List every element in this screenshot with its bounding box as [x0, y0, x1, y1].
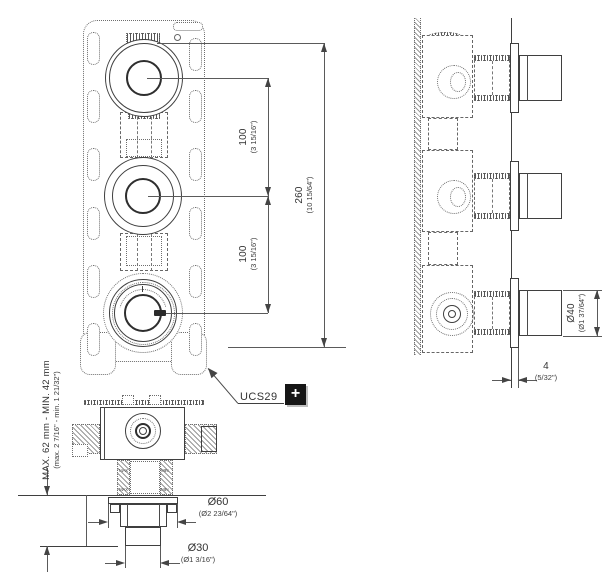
- dim-line-spacing-top: [268, 78, 269, 196]
- body-top-ear-inner: [450, 72, 466, 92]
- dim-arrow: [177, 519, 186, 525]
- mounting-slot: [87, 265, 100, 298]
- escutcheon-top: [510, 43, 519, 113]
- knob-base-line: [527, 173, 528, 219]
- engraving-min: MIN: [161, 488, 168, 493]
- mounting-slot: [189, 265, 202, 298]
- dim-label-trim-offset: 4 (5/32"): [516, 361, 576, 382]
- knob-base-line: [527, 290, 528, 336]
- dim-line-overall-height: [324, 43, 325, 347]
- stem-knurl: [474, 329, 510, 335]
- mounting-slot: [87, 32, 100, 65]
- safety-stop-button: [154, 310, 166, 316]
- engraving-min: MIN: [161, 469, 168, 474]
- dim-label-spacing-top: 100 (3 15/16"): [238, 97, 262, 177]
- screw-boss: [122, 395, 134, 405]
- knob-base-line: [527, 55, 528, 101]
- dial-index-tick: [142, 286, 143, 292]
- dim-line-spacing-bottom: [268, 196, 269, 313]
- leader-line: [157, 43, 324, 44]
- engraving-max: MAX: [119, 488, 128, 493]
- callout-underline: [238, 403, 284, 404]
- dim-arrow: [265, 304, 271, 313]
- dim-arrow: [594, 290, 600, 299]
- mounting-slot: [189, 148, 202, 181]
- projection-line: [86, 495, 87, 546]
- escutcheon-middle: [510, 161, 519, 231]
- extension-line: [108, 504, 109, 528]
- dim-arrow: [265, 196, 271, 205]
- pipe-cap-right: [201, 426, 217, 452]
- plate-top-slot: [173, 22, 203, 31]
- stem-line: [492, 61, 493, 95]
- leader-line: [147, 78, 268, 79]
- stem-knurl: [474, 95, 510, 101]
- collar-line: [127, 504, 128, 527]
- dim-arrow: [116, 560, 125, 566]
- dim-arrow: [321, 338, 327, 347]
- reference-line: [40, 546, 118, 547]
- dim-label-depth: MAX. 62 mm - MIN. 42 mm (max. 2 7/16" - …: [42, 345, 68, 495]
- bracket-edge-strip: [84, 400, 204, 405]
- dim-label-handle-diameter: Ø40 (Ø1 37/64"): [566, 273, 590, 353]
- neck-center: [130, 461, 160, 494]
- cartridge-center: [448, 310, 456, 318]
- dim-arrow: [265, 78, 271, 87]
- extension-line: [125, 546, 126, 568]
- stem-knurl: [474, 213, 510, 219]
- escutcheon-tab-right: [167, 504, 177, 513]
- connector-detail: [126, 139, 162, 157]
- dim-label-spout: Ø30 (Ø1 3/16"): [168, 542, 228, 564]
- mounting-slot: [87, 207, 100, 240]
- connector-detail: [126, 236, 162, 266]
- escutcheon-tab-left: [110, 504, 120, 513]
- dim-arrow: [99, 519, 108, 525]
- engraving-max: MAX: [119, 469, 128, 474]
- technical-drawing: 100 (3 15/16") 100 (3 15/16") 260 (10 15…: [0, 0, 614, 586]
- dim-arrow: [321, 43, 327, 52]
- dim-arrow: [44, 546, 50, 555]
- collar-line: [159, 504, 160, 527]
- mounting-slot: [87, 148, 100, 181]
- mounting-slot: [87, 323, 100, 356]
- knob-top: [519, 55, 562, 101]
- mounting-slot: [189, 323, 202, 356]
- dim-tail: [105, 563, 116, 564]
- screw-boss: [149, 395, 161, 405]
- body-edge-line: [104, 407, 105, 460]
- dim-arrow: [594, 327, 600, 336]
- dim-arrow: [265, 187, 271, 196]
- dim-arrow: [502, 377, 511, 383]
- plate-edge: [414, 18, 421, 355]
- leader-line: [228, 347, 346, 348]
- plate-screw-hole: [174, 34, 181, 41]
- pipe-step-left: [72, 444, 88, 457]
- dim-label-escutcheon: Ø60 (Ø2 23/64"): [188, 496, 248, 518]
- escutcheon-bottom: [510, 278, 519, 348]
- mounting-slot: [87, 90, 100, 123]
- product-code: UCS29: [240, 391, 277, 403]
- knob-middle: [519, 173, 562, 219]
- body-connector: [428, 118, 458, 150]
- mounting-slot: [189, 90, 202, 123]
- body-middle-ear-inner: [450, 187, 466, 207]
- body-connector: [428, 232, 458, 265]
- leader-line: [148, 196, 268, 197]
- plus-button[interactable]: +: [285, 384, 306, 405]
- stem-line: [492, 297, 493, 329]
- dim-label-overall-height: 260 (10 15/64"): [294, 155, 318, 235]
- mounting-slot: [189, 207, 202, 240]
- spout-nipple: [125, 527, 161, 546]
- dim-label-spacing-bottom: 100 (3 15/16"): [238, 214, 262, 294]
- stem-line: [492, 179, 493, 213]
- escutcheon-plate: [108, 497, 178, 504]
- cartridge-face-center: [139, 427, 147, 435]
- leader-line: [166, 313, 268, 314]
- dim-tail: [186, 522, 196, 523]
- knob-bottom: [519, 290, 562, 336]
